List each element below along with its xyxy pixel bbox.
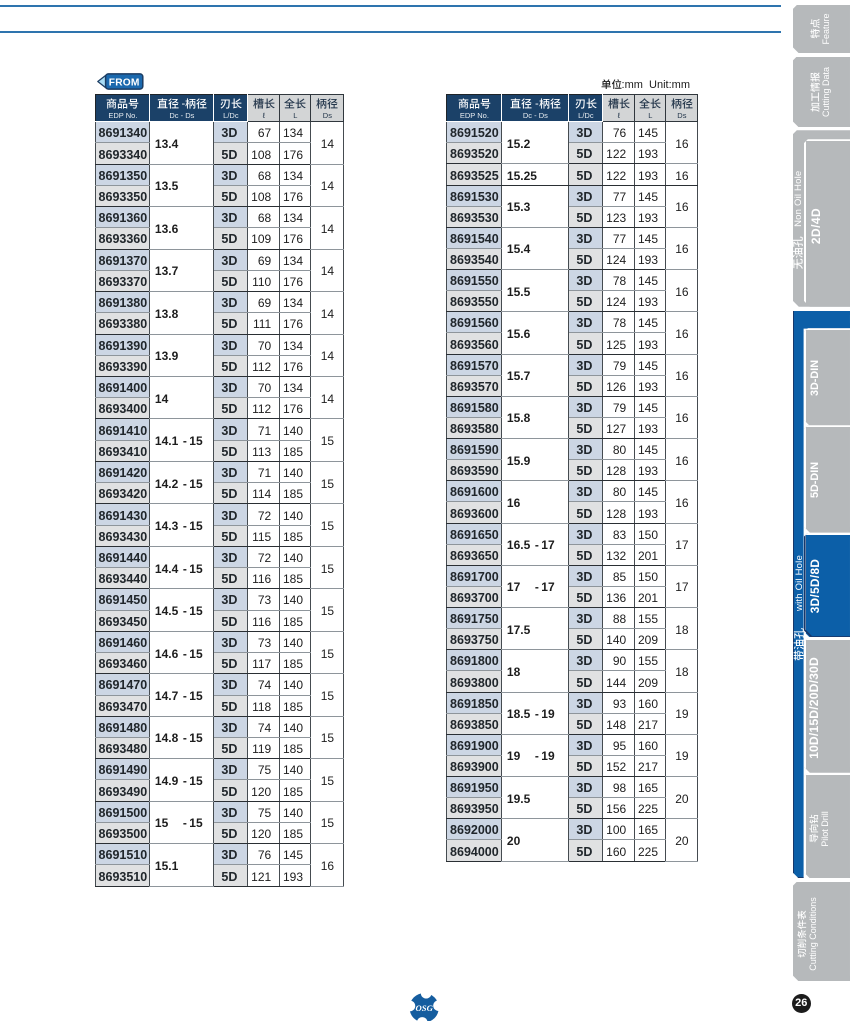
svg-text:FROM: FROM	[109, 77, 140, 88]
svg-text:OSG: OSG	[416, 1003, 434, 1013]
